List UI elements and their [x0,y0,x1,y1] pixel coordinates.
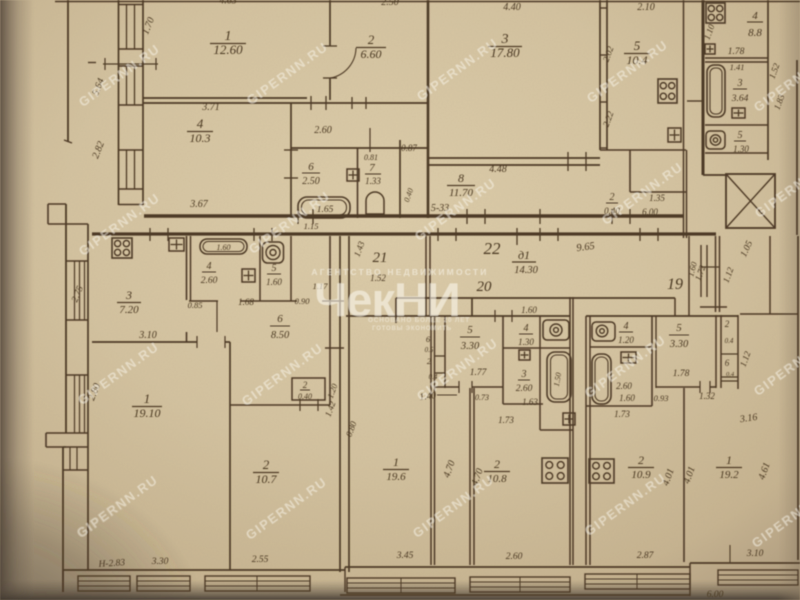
svg-text:5: 5 [467,324,473,336]
svg-text:5: 5 [272,263,277,274]
svg-text:1.20: 1.20 [618,335,634,345]
svg-text:ГОТОВЫ ЭКОНОМИТЬ: ГОТОВЫ ЭКОНОМИТЬ [372,326,452,332]
svg-text:3.45: 3.45 [396,551,414,561]
svg-text:2: 2 [303,380,308,390]
svg-text:4: 4 [752,10,758,22]
svg-text:2: 2 [725,319,730,329]
svg-text:4.63: 4.63 [219,0,237,7]
svg-text:2.50: 2.50 [302,176,320,187]
svg-text:0.4: 0.4 [726,371,735,378]
svg-text:1.60: 1.60 [521,305,537,315]
svg-text:7.20: 7.20 [119,304,139,316]
svg-text:5: 5 [676,322,682,334]
svg-text:0.93: 0.93 [654,393,669,403]
svg-text:0.87: 0.87 [401,143,417,153]
svg-text:0.4: 0.4 [725,337,734,345]
svg-text:0.73: 0.73 [475,393,489,402]
svg-text:19.10: 19.10 [134,406,161,420]
svg-text:3.10: 3.10 [138,330,157,341]
svg-text:1.68: 1.68 [238,297,254,307]
svg-text:7: 7 [369,162,375,174]
svg-text:ОСНОВАНО БОЛЕЕ 20 ЛЕТ: ОСНОВАНО БОЛЕЕ 20 ЛЕТ [368,317,470,324]
svg-text:2: 2 [368,32,375,47]
svg-text:6: 6 [277,313,283,325]
svg-text:2.55: 2.55 [252,555,269,565]
svg-text:3.64: 3.64 [731,94,749,104]
svg-text:2: 2 [638,453,644,467]
svg-text:2.60: 2.60 [201,276,218,286]
svg-text:4: 4 [524,323,529,334]
svg-text:21: 21 [373,250,388,266]
svg-text:1.15: 1.15 [304,221,319,231]
svg-text:2.60: 2.60 [314,125,332,136]
svg-text:3.67: 3.67 [189,199,209,210]
svg-text:1.78: 1.78 [728,47,745,57]
svg-text:8.8: 8.8 [748,27,762,39]
svg-text:1.60: 1.60 [619,393,635,403]
svg-text:4.40: 4.40 [503,2,521,13]
svg-text:1.78: 1.78 [673,369,690,379]
svg-text:2.60: 2.60 [506,552,523,562]
svg-text:20: 20 [477,279,493,295]
svg-text:3.30: 3.30 [151,557,169,567]
svg-text:2.10: 2.10 [637,2,655,13]
svg-text:2.87: 2.87 [637,551,655,561]
svg-text:5: 5 [634,38,641,53]
svg-text:2.60: 2.60 [616,381,632,391]
svg-text:3.30: 3.30 [669,339,689,350]
svg-text:14.30: 14.30 [514,265,538,276]
svg-text:2.60: 2.60 [516,384,533,394]
svg-text:6.60: 6.60 [361,47,382,61]
svg-text:5: 5 [738,130,743,141]
svg-text:4: 4 [624,321,629,332]
svg-text:4: 4 [207,261,212,272]
svg-text:19.6: 19.6 [386,471,406,483]
svg-text:1.73: 1.73 [498,415,514,425]
svg-text:4.48: 4.48 [489,164,507,175]
svg-text:12.60: 12.60 [213,42,243,57]
svg-text:3.10: 3.10 [746,549,764,559]
svg-text:1.60: 1.60 [266,277,282,287]
svg-text:1.77: 1.77 [470,368,488,378]
svg-text:10.3: 10.3 [190,131,211,145]
svg-text:2: 2 [263,457,270,472]
svg-text:1: 1 [393,455,399,469]
svg-text:22: 22 [484,239,502,258]
svg-text:0.81: 0.81 [364,153,378,162]
svg-text:6: 6 [725,358,730,368]
svg-text:0.5: 0.5 [425,346,434,354]
svg-text:1.60: 1.60 [217,243,231,252]
svg-text:6.00: 6.00 [707,590,724,600]
svg-text:0.90: 0.90 [295,296,311,306]
svg-text:1.33: 1.33 [365,176,381,186]
svg-text:0.85: 0.85 [188,300,203,310]
svg-text:2.50: 2.50 [381,0,399,8]
svg-text:8: 8 [458,171,464,185]
svg-text:10.7: 10.7 [256,472,278,486]
svg-text:19.2: 19.2 [719,469,739,481]
svg-text:3: 3 [737,78,743,89]
svg-text:19: 19 [667,276,683,293]
svg-text:1.30: 1.30 [518,337,534,347]
svg-text:1: 1 [726,453,732,467]
svg-text:2: 2 [494,457,500,471]
svg-text:3: 3 [521,369,527,380]
svg-text:3.71: 3.71 [201,102,220,113]
svg-text:4: 4 [197,116,204,131]
svg-text:1.73: 1.73 [614,409,630,419]
svg-text:1.32: 1.32 [699,391,715,401]
svg-text:д1: д1 [518,248,530,262]
svg-text:3: 3 [125,288,132,302]
svg-text:8.50: 8.50 [271,330,290,341]
svg-text:Н-2.83: Н-2.83 [97,558,126,570]
svg-text:2: 2 [610,192,615,203]
svg-text:1.63: 1.63 [522,397,538,407]
svg-text:1: 1 [144,391,151,406]
svg-text:0.40: 0.40 [298,392,312,401]
svg-text:6: 6 [308,161,314,173]
svg-text:1.41: 1.41 [730,62,745,72]
